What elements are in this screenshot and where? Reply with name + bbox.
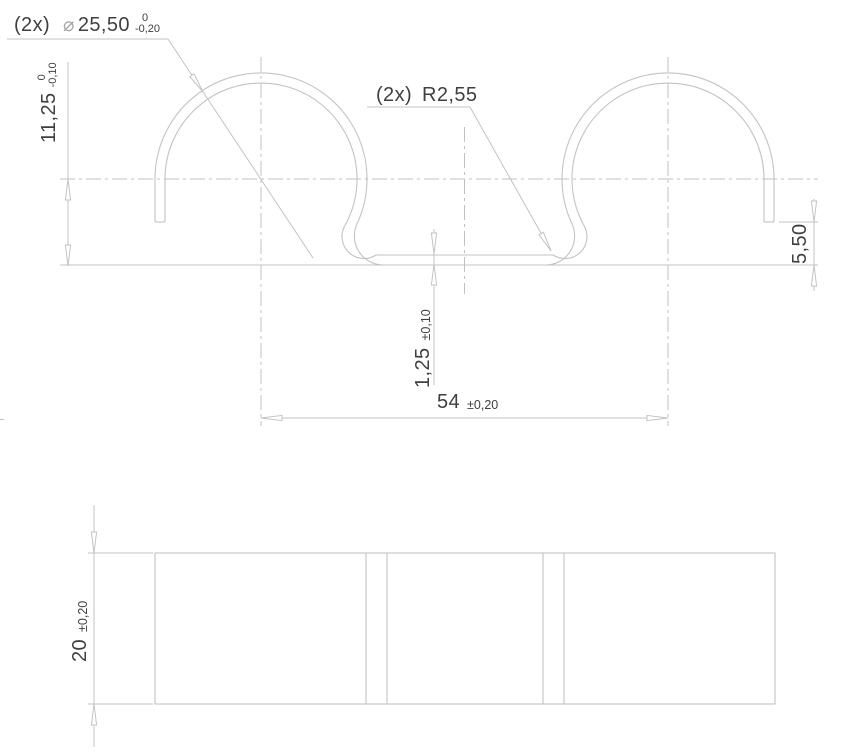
diameter-dimension-label: (2x) ⌀ 25,50 0 -0,20 — [14, 13, 160, 36]
diameter-tolerance-lower: -0,20 — [135, 24, 160, 35]
height-tolerance-stack: 0 -0,10 — [37, 62, 60, 87]
drawing-sheet: (2x) ⌀ 25,50 0 -0,20 (2x) R2,55 11,25 0 … — [0, 0, 846, 753]
bottom-view-outline — [155, 553, 775, 704]
height-dimension-label: 11,25 0 -0,10 — [37, 62, 60, 143]
diameter-value: 25,50 — [78, 15, 130, 36]
radius-leader-arrow — [539, 232, 551, 251]
left-hump-inner-contour — [165, 83, 376, 258]
bottom-view — [155, 553, 775, 704]
centerlines — [60, 57, 818, 426]
thickness-tolerance: ±0,10 — [419, 309, 434, 340]
diameter-icon: ⌀ — [63, 15, 75, 36]
leg-dimension-label: 5,50 — [790, 223, 811, 264]
left-hump-outer-contour — [155, 73, 383, 265]
width-bottom-arrow — [91, 704, 96, 725]
diameter-count-prefix: (2x) — [14, 15, 50, 36]
thickness-value: 1,25 — [413, 347, 434, 388]
radius-value: R2,55 — [422, 85, 477, 106]
right-hump-outer-contour — [546, 73, 774, 265]
height-bottom-arrow — [65, 245, 70, 266]
span-left-arrow — [261, 415, 282, 420]
height-tolerance-lower: -0,10 — [48, 62, 59, 87]
width-dimension-label: 20 ±0,20 — [70, 601, 91, 662]
span-dimension-label: 54 ±0,20 — [437, 392, 498, 413]
diameter-tolerance-stack: 0 -0,20 — [135, 13, 160, 36]
right-hump-inner-contour — [553, 83, 764, 258]
radius-count-prefix: (2x) — [376, 85, 412, 106]
dimension-lines — [7, 39, 814, 747]
diameter-leader-arrow — [190, 74, 203, 92]
radius-dimension-label: (2x) R2,55 — [376, 85, 477, 106]
width-top-arrow — [91, 532, 96, 553]
leg-top-arrow — [811, 201, 816, 222]
thickness-top-arrow — [431, 233, 436, 254]
span-right-arrow — [647, 415, 668, 420]
leg-bottom-arrow — [811, 265, 816, 286]
width-value: 20 — [70, 639, 91, 662]
span-tolerance: ±0,20 — [467, 398, 498, 413]
leg-value: 5,50 — [790, 223, 811, 264]
span-value: 54 — [437, 392, 460, 413]
thickness-bottom-arrow — [431, 264, 436, 285]
height-top-arrow — [65, 179, 70, 200]
width-tolerance: ±0,20 — [76, 601, 91, 632]
thickness-dimension-label: 1,25 ±0,10 — [413, 309, 434, 388]
height-value: 11,25 — [39, 92, 60, 143]
front-view-profile — [0, 73, 818, 420]
